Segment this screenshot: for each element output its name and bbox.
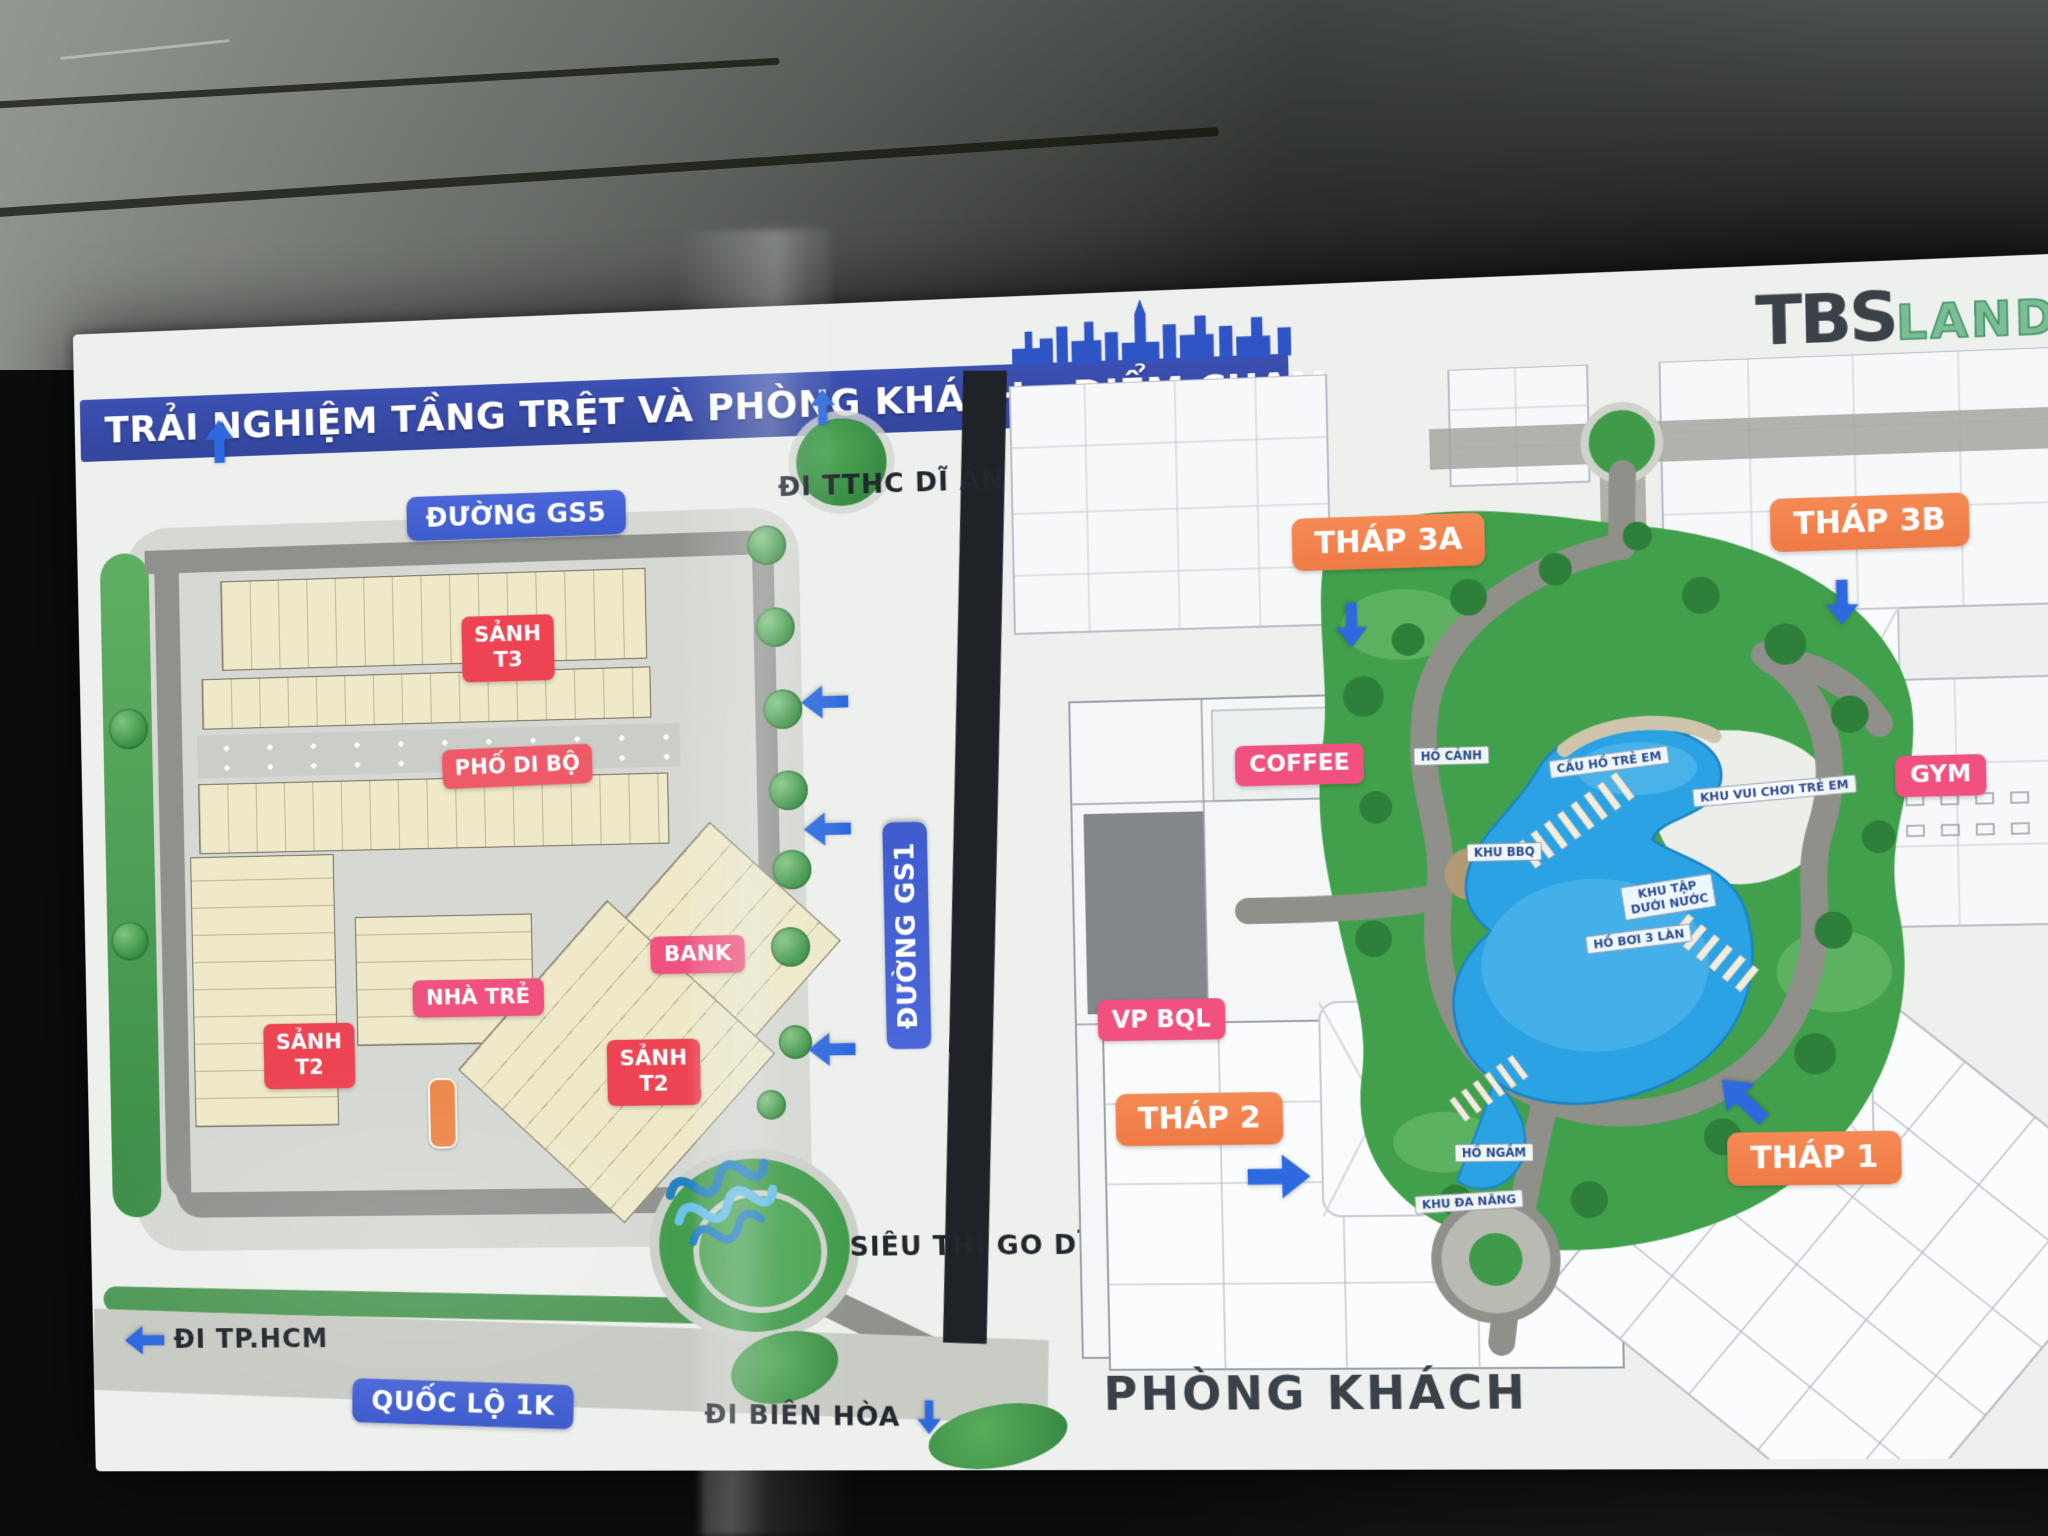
tower-2-label: THÁP 2 — [1115, 1092, 1283, 1146]
living-room-caption: PHÒNG KHÁCH — [1103, 1365, 1529, 1421]
tower-3b-label: THÁP 3B — [1770, 492, 1970, 552]
lobby-t3-label: SẢNH T3 — [461, 614, 554, 682]
shophouse-row — [220, 568, 647, 671]
gym-label: GYM — [1895, 754, 1987, 797]
tower-1-label: THÁP 1 — [1727, 1131, 1902, 1186]
coffee-label: COFFEE — [1235, 743, 1365, 786]
arrow-up-icon — [193, 419, 247, 464]
tower-3a-label: THÁP 3A — [1292, 513, 1486, 572]
road-label-gs5: ĐƯỜNG GS5 — [406, 490, 626, 542]
boundary-road-band — [943, 371, 1007, 1344]
arrow-down-icon — [1809, 579, 1875, 626]
arrow-down-icon — [1320, 602, 1384, 648]
screen-glare — [60, 1050, 780, 1430]
bbq-area-label: KHU BBQ — [1467, 842, 1543, 862]
arrow-down-icon — [907, 1400, 951, 1434]
photo-scene: TRẢI NGHIỆM TẦNG TRỆT VÀ PHÒNG KHÁCH – Đ… — [0, 0, 2048, 1536]
city-skyline-graphic — [1011, 289, 1293, 366]
management-office-label: VP BQL — [1097, 998, 1225, 1041]
tbs-land-logo: TBS LAND — [1755, 276, 2048, 356]
kindergarten-label: NHÀ TRẺ — [412, 978, 544, 1018]
amenity-site-plan: THÁP 3A THÁP 3B COFFEE GYM VP BQL THÁP 2… — [1005, 346, 2048, 1465]
road-label-gs1: ĐƯỜNG GS1 — [882, 822, 931, 1050]
scenic-pond-label: HỒ CẢNH — [1413, 746, 1489, 767]
logo-tbs: TBS — [1755, 283, 1897, 356]
shophouse-row — [198, 772, 669, 854]
logo-land: LAND — [1896, 293, 2048, 347]
arrow-right-icon — [1247, 1154, 1311, 1199]
pedestrian-street-label: PHỐ DI BỘ — [442, 744, 594, 790]
viewing-pond-label: HỒ NGẮM — [1454, 1143, 1533, 1163]
